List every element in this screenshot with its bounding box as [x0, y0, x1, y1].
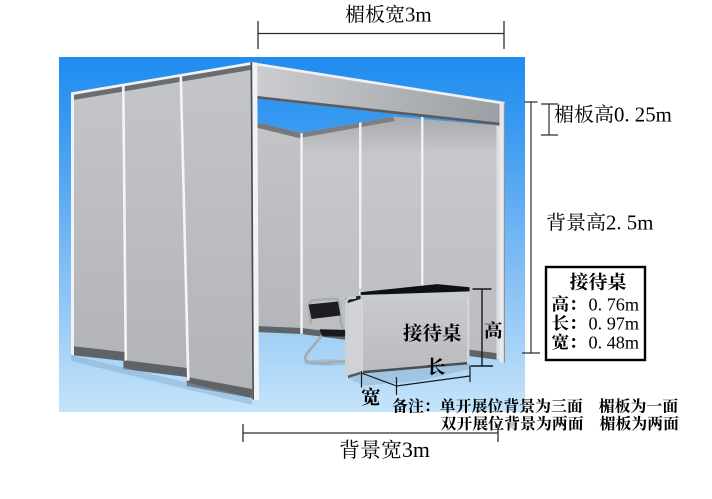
svg-text:0. 48m: 0. 48m — [589, 332, 640, 352]
svg-text:0. 25m: 0. 25m — [614, 103, 672, 126]
svg-text:3m: 3m — [402, 438, 430, 462]
svg-text:0. 76m: 0. 76m — [589, 294, 640, 314]
svg-text:2. 5m: 2. 5m — [606, 211, 653, 234]
svg-text:0. 97m: 0. 97m — [589, 313, 640, 333]
svg-text:3m: 3m — [405, 3, 432, 26]
